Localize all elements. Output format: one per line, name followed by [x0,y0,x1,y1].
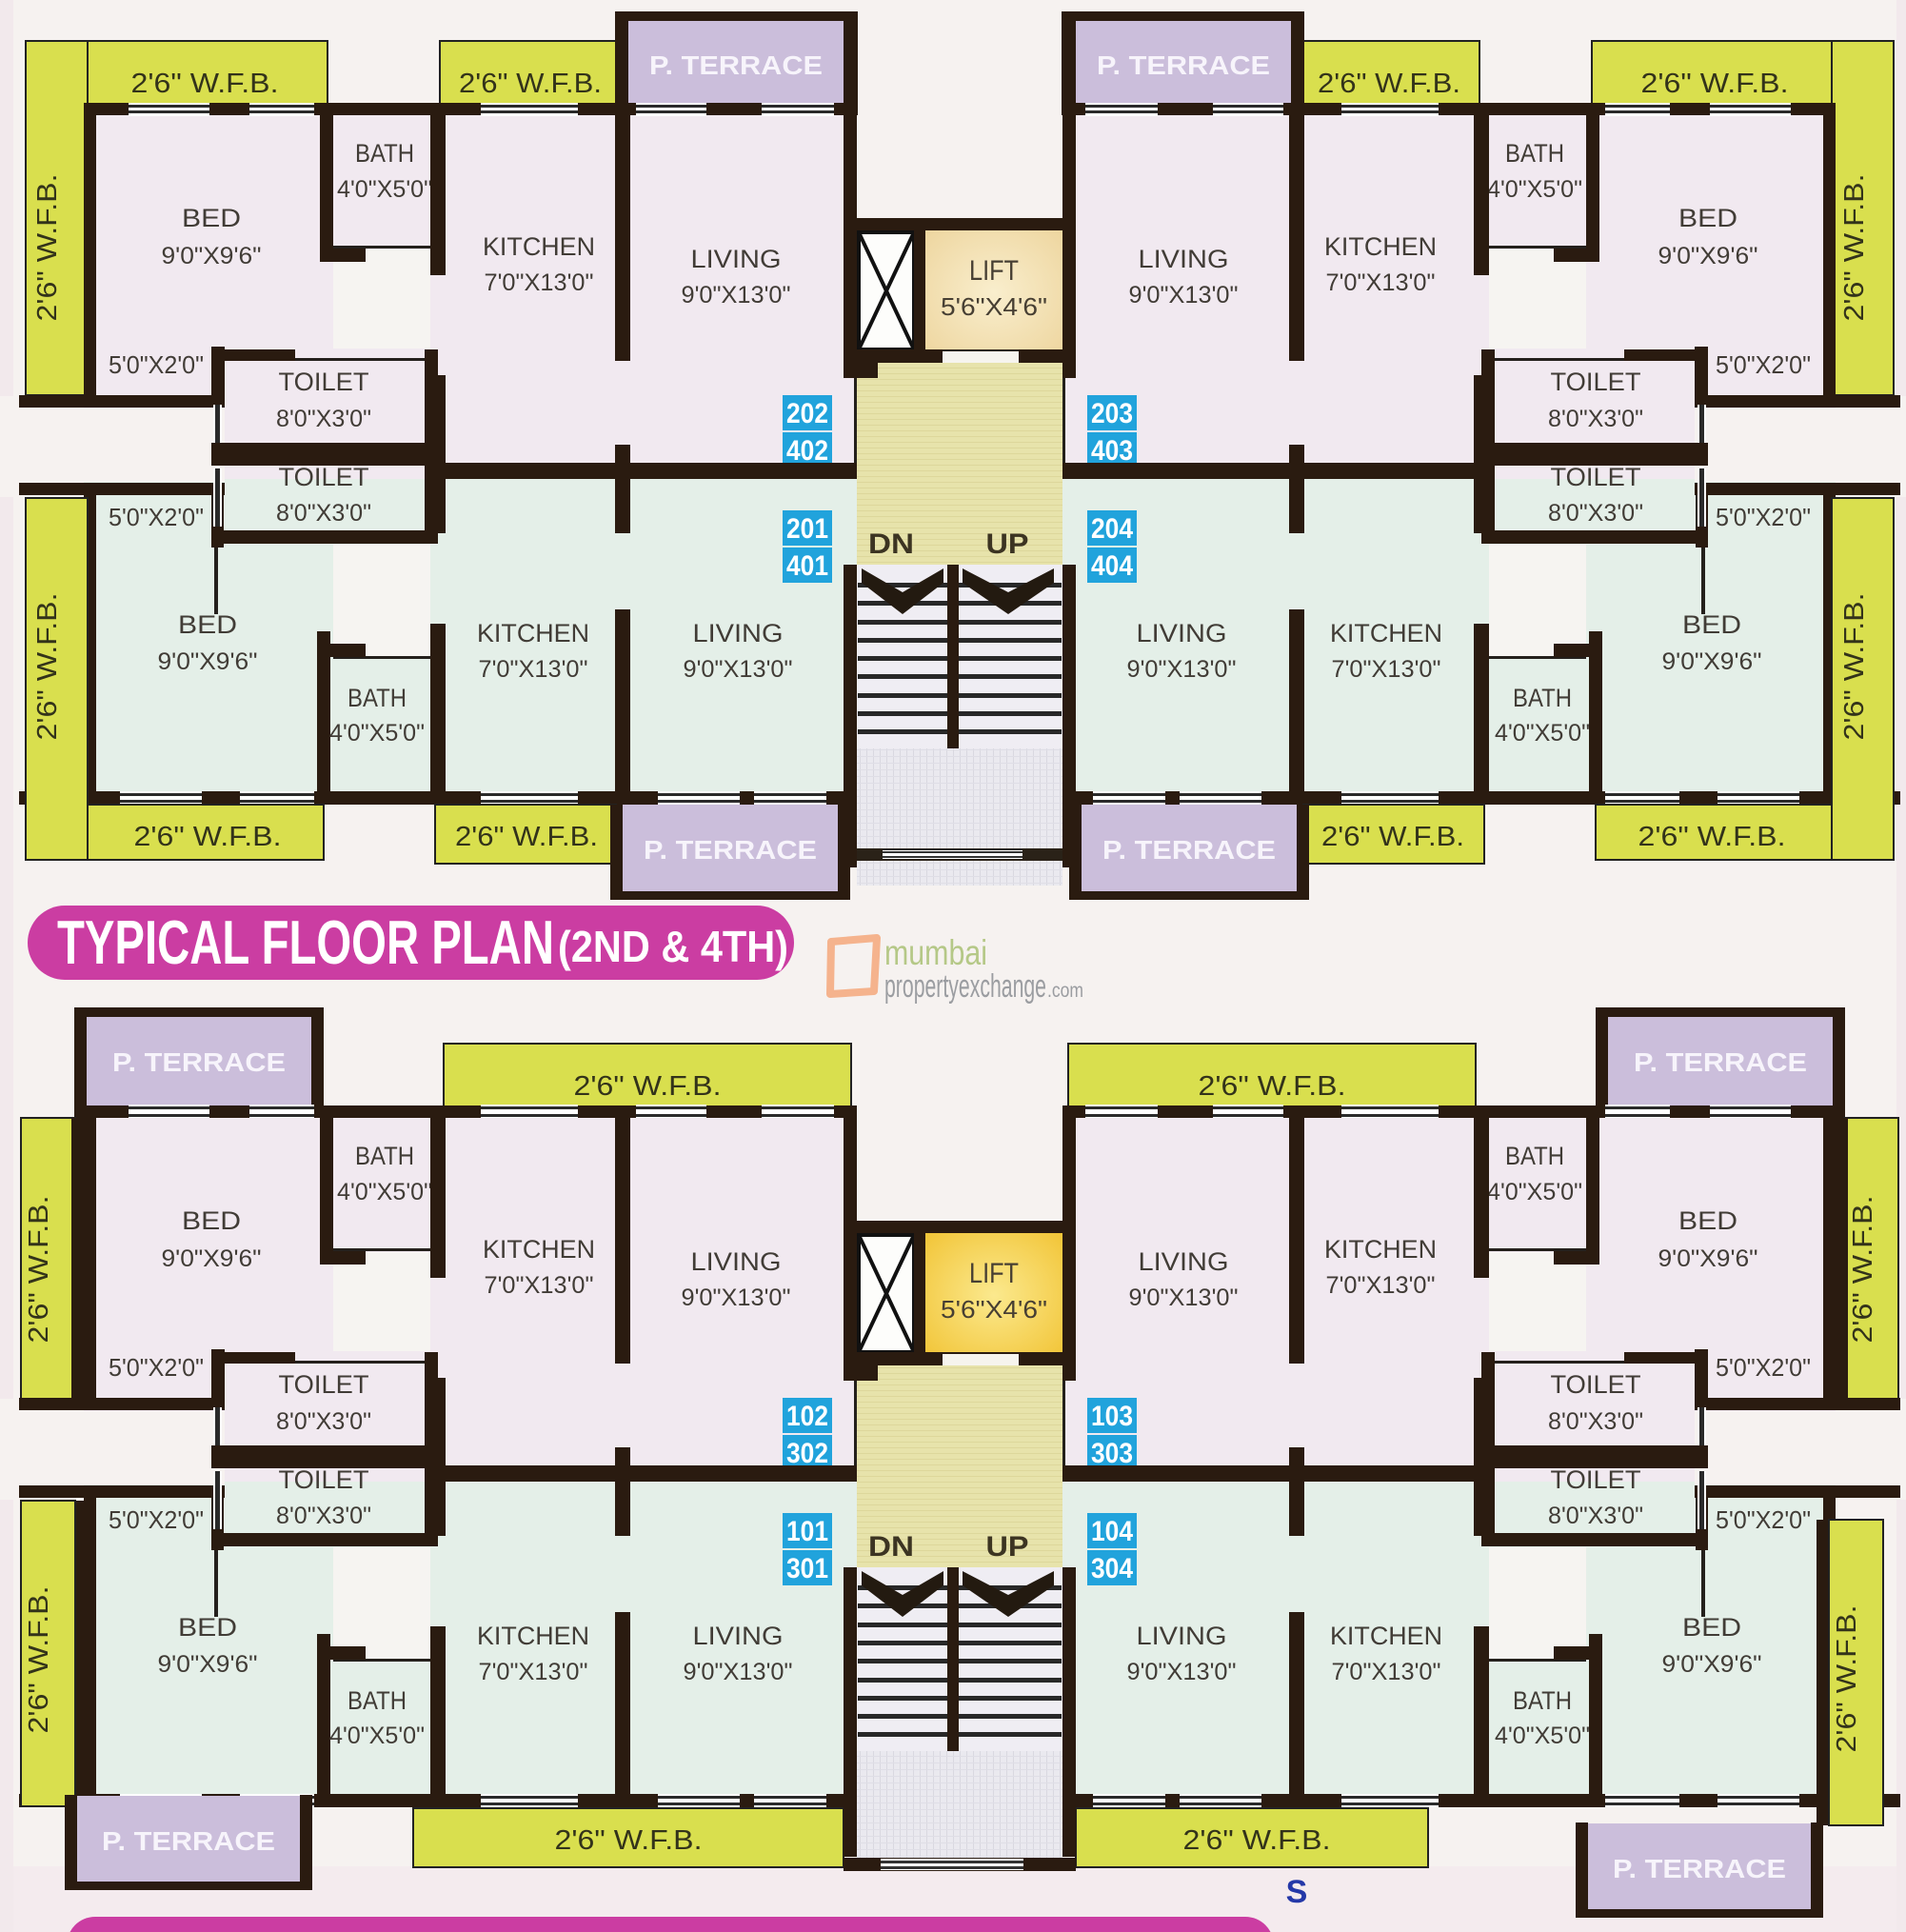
svg-text:9'0"X13'0": 9'0"X13'0" [1127,656,1237,683]
svg-text:102: 102 [786,1401,828,1432]
svg-text:302: 302 [786,1438,828,1469]
svg-text:7'0"X13'0": 7'0"X13'0" [485,1272,594,1299]
svg-text:4'0"X5'0": 4'0"X5'0" [1487,176,1582,203]
svg-text:2'6" W.F.B.: 2'6" W.F.B. [24,1196,54,1344]
svg-text:5'0"X2'0": 5'0"X2'0" [109,350,204,379]
svg-text:LIVING: LIVING [1137,619,1227,647]
svg-text:P. TERRACE: P. TERRACE [644,835,817,865]
svg-text:LIVING: LIVING [1139,1247,1229,1276]
svg-text:2'6" W.F.B.: 2'6" W.F.B. [1318,69,1460,99]
svg-text:303: 303 [1091,1438,1133,1469]
svg-text:4'0"X5'0": 4'0"X5'0" [337,1179,432,1205]
svg-text:202: 202 [786,398,828,429]
svg-text:2'6" W.F.B.: 2'6" W.F.B. [1832,1605,1862,1753]
svg-text:2'6" W.F.B.: 2'6" W.F.B. [131,69,279,99]
svg-text:4'0"X5'0": 4'0"X5'0" [329,1723,425,1749]
svg-text:BATH: BATH [1505,1142,1564,1170]
svg-text:404: 404 [1091,550,1133,582]
svg-text:LIVING: LIVING [1137,1622,1227,1650]
svg-text:TYPICAL FLOOR PLAN: TYPICAL FLOOR PLAN [57,907,554,977]
svg-text:2'6" W.F.B.: 2'6" W.F.B. [459,69,602,99]
svg-text:TOILET: TOILET [1551,368,1641,396]
svg-text:8'0"X3'0": 8'0"X3'0" [276,1408,371,1435]
svg-text:2'6" W.F.B.: 2'6" W.F.B. [1638,822,1786,852]
svg-text:5'0"X2'0": 5'0"X2'0" [109,1353,204,1382]
svg-text:TOILET: TOILET [279,368,369,396]
svg-text:DN: DN [868,528,914,560]
svg-text:9'0"X9'6": 9'0"X9'6" [158,1651,258,1678]
svg-text:KITCHEN: KITCHEN [1330,1622,1442,1650]
svg-text:2'6" W.F.B.: 2'6" W.F.B. [1848,1196,1878,1344]
svg-text:2'6" W.F.B.: 2'6" W.F.B. [134,822,282,852]
svg-text:4'0"X5'0": 4'0"X5'0" [329,720,425,747]
svg-text:BED: BED [178,1613,237,1642]
svg-text:BATH: BATH [1513,1686,1572,1715]
svg-text:BATH: BATH [1513,684,1572,712]
svg-text:5'0"X2'0": 5'0"X2'0" [1716,1353,1811,1382]
svg-text:BED: BED [1678,204,1737,232]
svg-text:7'0"X13'0": 7'0"X13'0" [1326,269,1436,296]
svg-text:4'0"X5'0": 4'0"X5'0" [1495,1723,1590,1749]
svg-text:2'6" W.F.B.: 2'6" W.F.B. [555,1825,703,1856]
svg-text:7'0"X13'0": 7'0"X13'0" [1332,656,1441,683]
svg-text:8'0"X3'0": 8'0"X3'0" [276,500,371,527]
svg-text:KITCHEN: KITCHEN [1330,619,1442,647]
svg-text:2'6" W.F.B.: 2'6" W.F.B. [32,593,63,741]
svg-text:LIVING: LIVING [691,245,782,273]
svg-text:LIVING: LIVING [693,619,784,647]
svg-text:.com: .com [1047,980,1083,1002]
svg-text:8'0"X3'0": 8'0"X3'0" [276,406,371,432]
svg-text:4'0"X5'0": 4'0"X5'0" [1495,720,1590,747]
svg-text:5'0"X2'0": 5'0"X2'0" [1716,350,1811,379]
svg-text:204: 204 [1091,513,1133,545]
svg-text:5'0"X2'0": 5'0"X2'0" [109,1505,204,1534]
svg-text:9'0"X9'6": 9'0"X9'6" [162,1245,262,1272]
svg-text:BATH: BATH [355,139,414,168]
svg-text:9'0"X9'6": 9'0"X9'6" [1658,243,1758,269]
svg-text:2'6" W.F.B.: 2'6" W.F.B. [24,1586,54,1734]
svg-text:LIFT: LIFT [969,1258,1019,1289]
svg-text:2'6" W.F.B.: 2'6" W.F.B. [455,822,598,852]
svg-text:403: 403 [1091,435,1133,467]
svg-text:KITCHEN: KITCHEN [483,1235,595,1264]
svg-text:P. TERRACE: P. TERRACE [649,50,823,80]
svg-text:P. TERRACE: P. TERRACE [1102,835,1276,865]
svg-text:P. TERRACE: P. TERRACE [112,1047,286,1077]
svg-text:301: 301 [786,1553,828,1584]
svg-text:2'6" W.F.B.: 2'6" W.F.B. [32,174,63,322]
svg-text:9'0"X13'0": 9'0"X13'0" [682,282,791,309]
svg-text:TOILET: TOILET [1551,1465,1641,1494]
svg-text:5'0"X2'0": 5'0"X2'0" [1716,503,1811,531]
svg-text:TOILET: TOILET [1551,463,1641,491]
svg-text:9'0"X9'6": 9'0"X9'6" [1662,1651,1762,1678]
svg-text:LIVING: LIVING [693,1622,784,1650]
svg-text:4'0"X5'0": 4'0"X5'0" [337,176,432,203]
svg-text:UP: UP [986,1531,1029,1563]
svg-text:BATH: BATH [347,1686,407,1715]
svg-text:7'0"X13'0": 7'0"X13'0" [479,1659,588,1685]
svg-text:LIFT: LIFT [969,255,1019,287]
svg-text:8'0"X3'0": 8'0"X3'0" [1548,500,1643,527]
svg-text:P. TERRACE: P. TERRACE [102,1826,275,1856]
svg-text:TOILET: TOILET [279,1465,369,1494]
svg-text:5'6"X4'6": 5'6"X4'6" [941,292,1047,321]
svg-text:LIVING: LIVING [691,1247,782,1276]
svg-text:203: 203 [1091,398,1133,429]
svg-text:2'6" W.F.B.: 2'6" W.F.B. [1839,174,1870,322]
svg-text:BED: BED [182,1206,241,1235]
svg-text:201: 201 [786,513,828,545]
svg-text:402: 402 [786,435,828,467]
svg-text:BED: BED [182,204,241,232]
svg-text:8'0"X3'0": 8'0"X3'0" [276,1503,371,1529]
svg-text:9'0"X9'6": 9'0"X9'6" [1662,648,1762,675]
svg-text:2'6" W.F.B.: 2'6" W.F.B. [1839,593,1870,741]
svg-text:9'0"X13'0": 9'0"X13'0" [1127,1659,1237,1685]
svg-text:8'0"X3'0": 8'0"X3'0" [1548,1408,1643,1435]
svg-text:9'0"X13'0": 9'0"X13'0" [684,656,793,683]
svg-text:2'6" W.F.B.: 2'6" W.F.B. [1183,1825,1331,1856]
svg-text:2'6" W.F.B.: 2'6" W.F.B. [1321,822,1464,852]
svg-text:TOILET: TOILET [279,463,369,491]
svg-text:KITCHEN: KITCHEN [483,232,595,261]
svg-text:104: 104 [1091,1516,1133,1547]
svg-text:BED: BED [178,610,237,639]
svg-text:BED: BED [1678,1206,1737,1235]
svg-text:8'0"X3'0": 8'0"X3'0" [1548,406,1643,432]
svg-text:7'0"X13'0": 7'0"X13'0" [1332,1659,1441,1685]
svg-text:8'0"X3'0": 8'0"X3'0" [1548,1503,1643,1529]
svg-text:LIVING: LIVING [1139,245,1229,273]
svg-text:9'0"X13'0": 9'0"X13'0" [684,1659,793,1685]
svg-text:9'0"X13'0": 9'0"X13'0" [682,1285,791,1311]
svg-text:7'0"X13'0": 7'0"X13'0" [479,656,588,683]
svg-text:304: 304 [1091,1553,1133,1584]
svg-text:101: 101 [786,1516,828,1547]
svg-text:BATH: BATH [355,1142,414,1170]
svg-text:4'0"X5'0": 4'0"X5'0" [1487,1179,1582,1205]
svg-text:7'0"X13'0": 7'0"X13'0" [1326,1272,1436,1299]
svg-text:TOILET: TOILET [279,1370,369,1399]
svg-text:mumbai: mumbai [884,933,987,972]
svg-text:2'6" W.F.B.: 2'6" W.F.B. [1641,69,1789,99]
svg-text:KITCHEN: KITCHEN [477,619,589,647]
svg-text:DN: DN [868,1531,914,1563]
svg-text:BATH: BATH [347,684,407,712]
svg-text:P. TERRACE: P. TERRACE [1634,1047,1807,1077]
svg-text:P. TERRACE: P. TERRACE [1097,50,1270,80]
svg-text:KITCHEN: KITCHEN [477,1622,589,1650]
svg-text:5'6"X4'6": 5'6"X4'6" [941,1295,1047,1324]
svg-text:BED: BED [1682,1613,1741,1642]
svg-text:BATH: BATH [1505,139,1564,168]
svg-text:9'0"X9'6": 9'0"X9'6" [158,648,258,675]
svg-text:9'0"X13'0": 9'0"X13'0" [1129,282,1239,309]
svg-text:BED: BED [1682,610,1741,639]
svg-text:2'6" W.F.B.: 2'6" W.F.B. [1199,1071,1346,1102]
svg-text:KITCHEN: KITCHEN [1324,232,1437,261]
svg-text:401: 401 [786,550,828,582]
svg-text:5'0"X2'0": 5'0"X2'0" [109,503,204,531]
svg-text:S: S [1286,1874,1308,1910]
svg-text:103: 103 [1091,1401,1133,1432]
svg-text:7'0"X13'0": 7'0"X13'0" [485,269,594,296]
svg-text:2'6" W.F.B.: 2'6" W.F.B. [574,1071,722,1102]
svg-text:UP: UP [986,528,1029,560]
svg-text:TOILET: TOILET [1551,1370,1641,1399]
svg-text:KITCHEN: KITCHEN [1324,1235,1437,1264]
svg-text:9'0"X9'6": 9'0"X9'6" [1658,1245,1758,1272]
svg-text:propertyexchange: propertyexchange [884,968,1046,1005]
svg-text:9'0"X13'0": 9'0"X13'0" [1129,1285,1239,1311]
svg-text:(2ND & 4TH): (2ND & 4TH) [558,922,788,971]
svg-text:5'0"X2'0": 5'0"X2'0" [1716,1505,1811,1534]
svg-text:P. TERRACE: P. TERRACE [1613,1854,1786,1883]
svg-text:9'0"X9'6": 9'0"X9'6" [162,243,262,269]
